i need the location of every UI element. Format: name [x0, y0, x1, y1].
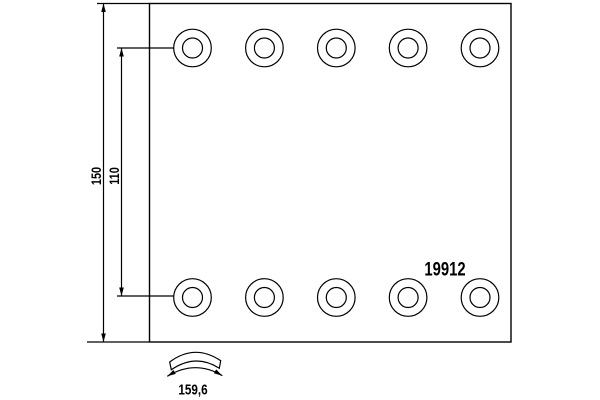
rivet-hole-outer	[389, 29, 427, 67]
arrow-down-icon	[101, 334, 106, 343]
rivet-hole-outer	[461, 29, 499, 67]
technical-drawing-canvas: 150 110 19912 159,6	[0, 0, 600, 400]
dim-hole-row-spacing	[117, 48, 174, 296]
rivet-hole-inner	[398, 38, 418, 58]
rivet-hole-inner	[398, 288, 418, 308]
rivet-hole-inner	[326, 38, 346, 58]
rivet-hole-inner	[470, 288, 490, 308]
rivet-hole-outer	[461, 279, 499, 317]
rivet-hole-outer	[246, 279, 284, 317]
rivet-hole-outer	[246, 29, 284, 67]
arrow-up-icon	[101, 4, 106, 13]
rivet-hole-outer	[389, 279, 427, 317]
dim-arc-width-label: 159,6	[178, 383, 207, 398]
dim-hole-spacing-label: 110	[107, 167, 121, 185]
arrow-right-icon	[214, 369, 224, 377]
rivet-hole-inner	[254, 288, 274, 308]
rivet-hole-row-top	[174, 29, 499, 67]
arrow-left-icon	[166, 370, 176, 378]
dim-arc-width	[166, 368, 223, 379]
part-number-label: 19912	[424, 261, 465, 280]
arrow-up-icon	[119, 48, 124, 57]
dim-height-label: 150	[89, 167, 103, 185]
rivet-hole-outer	[318, 279, 356, 317]
rivet-hole-outer	[174, 29, 212, 67]
rivet-hole-row-bottom	[174, 279, 499, 317]
rivet-hole-inner	[470, 38, 490, 58]
rivet-hole-inner	[183, 288, 203, 308]
rivet-hole-inner	[183, 38, 203, 58]
drawing-linework	[0, 0, 600, 400]
dim-arc-line	[167, 368, 222, 377]
arrow-down-icon	[119, 288, 124, 297]
rivet-hole-inner	[326, 288, 346, 308]
lining-outline	[150, 4, 512, 343]
rivet-hole-inner	[254, 38, 274, 58]
rivet-hole-outer	[174, 279, 212, 317]
rivet-hole-outer	[318, 29, 356, 67]
